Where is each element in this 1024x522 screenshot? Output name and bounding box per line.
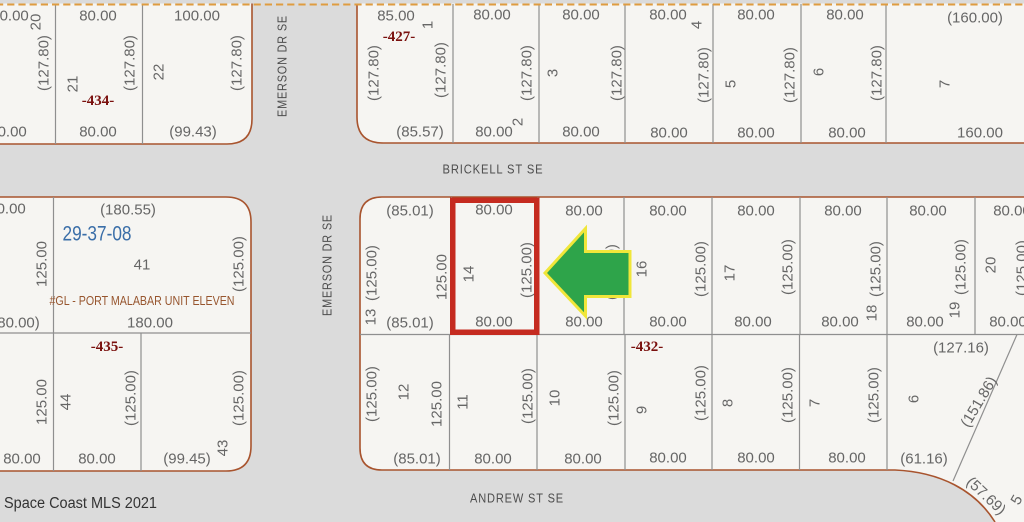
svg-text:80.00: 80.00 — [79, 124, 117, 141]
svg-text:1: 1 — [420, 21, 437, 29]
svg-text:80.00: 80.00 — [79, 8, 117, 25]
svg-text:29-37-08: 29-37-08 — [63, 223, 132, 246]
svg-text:16: 16 — [634, 261, 651, 278]
svg-text:(180.55): (180.55) — [100, 202, 156, 219]
svg-text:-432-: -432- — [631, 339, 664, 355]
svg-text:41: 41 — [134, 257, 151, 274]
svg-text:80.00: 80.00 — [993, 203, 1024, 220]
svg-text:44: 44 — [58, 394, 75, 411]
svg-text:80.00: 80.00 — [649, 203, 687, 220]
svg-text:3: 3 — [545, 69, 562, 77]
svg-text:-427-: -427- — [383, 29, 416, 45]
svg-text:(80.00): (80.00) — [0, 315, 40, 332]
svg-text:(125.00): (125.00) — [231, 370, 248, 426]
svg-text:(160.00): (160.00) — [947, 10, 1003, 27]
svg-text:(125.00): (125.00) — [519, 242, 536, 298]
svg-text:21: 21 — [65, 76, 82, 93]
svg-text:80.00: 80.00 — [0, 8, 29, 25]
svg-text:(99.43): (99.43) — [169, 124, 217, 141]
svg-text:(127.80): (127.80) — [519, 45, 536, 101]
svg-text:Space Coast MLS 2021: Space Coast MLS 2021 — [4, 495, 157, 512]
svg-text:80.00: 80.00 — [475, 124, 513, 141]
svg-text:20: 20 — [983, 257, 1000, 274]
svg-text:(125.00): (125.00) — [693, 365, 710, 421]
svg-text:(125.00): (125.00) — [866, 367, 883, 423]
svg-text:(127.80): (127.80) — [366, 45, 383, 101]
svg-text:(61.16): (61.16) — [900, 451, 948, 468]
svg-text:125.00: 125.00 — [34, 379, 51, 425]
svg-text:80.00: 80.00 — [828, 125, 866, 142]
svg-text:80.00: 80.00 — [906, 314, 944, 331]
svg-text:(99.45): (99.45) — [163, 451, 211, 468]
svg-text:80.00: 80.00 — [562, 124, 600, 141]
svg-text:80.00: 80.00 — [475, 202, 513, 219]
svg-text:ANDREW ST SE: ANDREW ST SE — [470, 491, 564, 506]
svg-text:(127.80): (127.80) — [609, 45, 626, 101]
svg-text:80.00: 80.00 — [649, 450, 687, 467]
svg-text:80.00: 80.00 — [821, 314, 859, 331]
svg-text:(125.00): (125.00) — [868, 241, 885, 297]
svg-text:80.00: 80.00 — [0, 124, 27, 141]
svg-text:20: 20 — [28, 14, 45, 31]
svg-text:85.00: 85.00 — [377, 8, 415, 25]
svg-text:(127.80): (127.80) — [229, 35, 246, 91]
svg-text:(127.80): (127.80) — [122, 35, 139, 91]
svg-text:80.00: 80.00 — [909, 203, 947, 220]
svg-text:14: 14 — [461, 266, 478, 283]
svg-text:(127.16): (127.16) — [933, 340, 989, 357]
svg-text:2: 2 — [510, 118, 527, 126]
svg-text:(125.00): (125.00) — [364, 366, 381, 422]
svg-text:80.00: 80.00 — [828, 450, 866, 467]
svg-text:80.00: 80.00 — [562, 7, 600, 24]
svg-text:7: 7 — [807, 399, 824, 407]
svg-text:125.00: 125.00 — [429, 381, 446, 427]
svg-text:(125.00): (125.00) — [953, 239, 970, 295]
svg-text:-434-: -434- — [82, 93, 115, 109]
svg-text:(127.80): (127.80) — [696, 47, 713, 103]
svg-text:80.00: 80.00 — [474, 451, 512, 468]
svg-text:(125.00): (125.00) — [231, 236, 248, 292]
svg-text:(125.00): (125.00) — [693, 241, 710, 297]
svg-text:80.00: 80.00 — [564, 451, 602, 468]
svg-text:(85.01): (85.01) — [393, 451, 441, 468]
svg-text:80.00: 80.00 — [650, 125, 688, 142]
svg-text:(125.00): (125.00) — [780, 239, 797, 295]
svg-text:80.00: 80.00 — [826, 7, 864, 24]
svg-text:8: 8 — [720, 399, 737, 407]
svg-text:7: 7 — [937, 80, 954, 88]
svg-text:EMERSON DR SE: EMERSON DR SE — [320, 214, 335, 316]
svg-text:BRICKELL ST SE: BRICKELL ST SE — [443, 162, 544, 177]
svg-text:4: 4 — [689, 21, 706, 29]
svg-text:(125.00): (125.00) — [780, 367, 797, 423]
svg-text:80.00: 80.00 — [737, 7, 775, 24]
svg-text:(125.00): (125.00) — [123, 370, 140, 426]
svg-text:80.00: 80.00 — [737, 203, 775, 220]
svg-text:(127.80): (127.80) — [869, 45, 886, 101]
svg-text:(85.01): (85.01) — [386, 315, 434, 332]
svg-text:43: 43 — [215, 440, 232, 457]
svg-text:11: 11 — [455, 394, 472, 410]
svg-text:9: 9 — [634, 406, 651, 414]
svg-text:(127.80): (127.80) — [433, 42, 450, 98]
svg-text:(125.00): (125.00) — [606, 370, 623, 426]
svg-text:#GL - PORT MALABAR UNIT ELEVEN: #GL - PORT MALABAR UNIT ELEVEN — [50, 294, 235, 308]
svg-text:100.00: 100.00 — [174, 8, 220, 25]
svg-text:(125.00): (125.00) — [1014, 240, 1024, 296]
svg-text:160.00: 160.00 — [957, 125, 1003, 142]
svg-text:5: 5 — [723, 80, 740, 88]
svg-text:80.00: 80.00 — [3, 451, 41, 468]
svg-text:6: 6 — [906, 395, 923, 403]
svg-text:(127.80): (127.80) — [782, 47, 799, 103]
svg-text:80.00: 80.00 — [989, 314, 1024, 331]
svg-text:80.00: 80.00 — [649, 314, 687, 331]
svg-text:-435-: -435- — [91, 339, 124, 355]
svg-text:6: 6 — [811, 68, 828, 76]
svg-text:17: 17 — [722, 265, 739, 282]
svg-text:125.00: 125.00 — [34, 241, 51, 287]
svg-text:10: 10 — [547, 390, 564, 407]
svg-text:80.00: 80.00 — [475, 314, 513, 331]
svg-text:80.00: 80.00 — [824, 203, 862, 220]
svg-text:(125.00): (125.00) — [520, 368, 537, 424]
svg-text:19: 19 — [947, 302, 964, 319]
svg-text:80.00: 80.00 — [473, 7, 511, 24]
svg-text:80.00: 80.00 — [737, 125, 775, 142]
svg-text:80.00: 80.00 — [649, 7, 687, 24]
svg-text:22: 22 — [151, 64, 168, 81]
svg-text:18: 18 — [864, 305, 881, 322]
svg-text:(85.01): (85.01) — [386, 203, 434, 220]
svg-text:13: 13 — [363, 309, 380, 326]
svg-text:(127.80): (127.80) — [36, 35, 53, 91]
svg-text:80.00: 80.00 — [737, 450, 775, 467]
svg-text:180.00: 180.00 — [127, 315, 173, 332]
svg-text:125.00: 125.00 — [434, 254, 451, 300]
svg-text:(85.57): (85.57) — [396, 124, 444, 141]
svg-text:EMERSON DR SE: EMERSON DR SE — [275, 15, 290, 117]
svg-text:12: 12 — [396, 384, 413, 401]
svg-text:80.00: 80.00 — [0, 201, 26, 218]
svg-text:80.00: 80.00 — [734, 314, 772, 331]
svg-text:(125.00): (125.00) — [364, 245, 381, 301]
svg-text:80.00: 80.00 — [565, 203, 603, 220]
svg-text:80.00: 80.00 — [78, 451, 116, 468]
